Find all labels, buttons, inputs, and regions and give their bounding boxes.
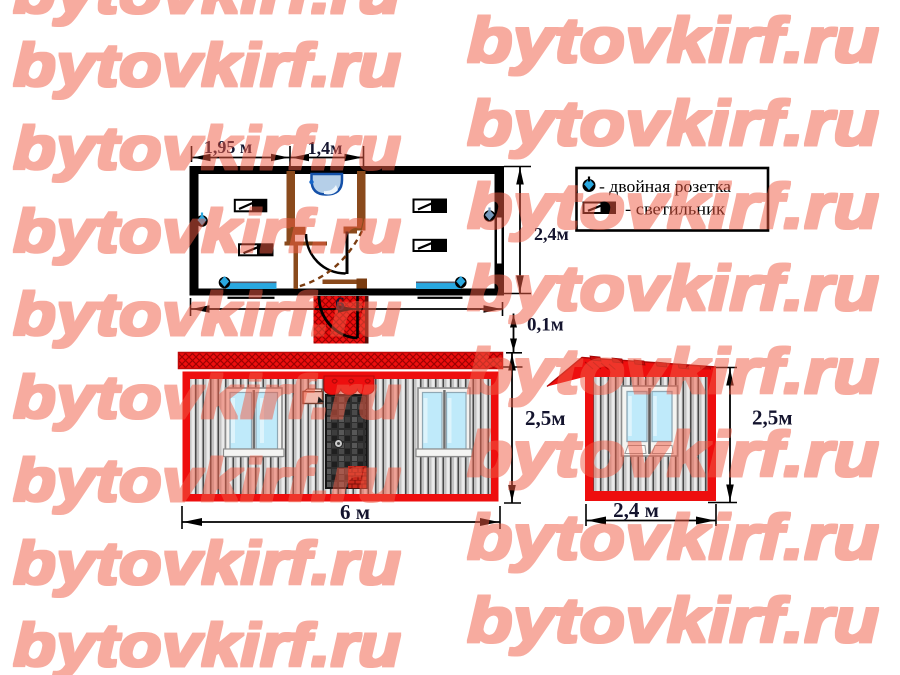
svg-text:bytovkirf.ru: bytovkirf.ru (13, 198, 401, 265)
svg-text:bytovkirf.ru: bytovkirf.ru (467, 420, 879, 490)
svg-text:bytovkirf.ru: bytovkirf.ru (467, 337, 879, 407)
svg-text:bytovkirf.ru: bytovkirf.ru (467, 254, 879, 324)
svg-text:bytovkirf.ru: bytovkirf.ru (467, 586, 879, 656)
svg-text:bytovkirf.ru: bytovkirf.ru (13, 0, 401, 26)
svg-text:bytovkirf.ru: bytovkirf.ru (13, 32, 401, 99)
svg-text:bytovkirf.ru: bytovkirf.ru (13, 612, 401, 675)
svg-text:bytovkirf.ru: bytovkirf.ru (467, 6, 879, 76)
svg-text:bytovkirf.ru: bytovkirf.ru (13, 115, 401, 182)
svg-text:bytovkirf.ru: bytovkirf.ru (467, 89, 879, 159)
svg-text:bytovkirf.ru: bytovkirf.ru (13, 364, 401, 431)
svg-text:bytovkirf.ru: bytovkirf.ru (467, 503, 879, 573)
svg-text:bytovkirf.ru: bytovkirf.ru (13, 530, 401, 597)
svg-text:bytovkirf.ru: bytovkirf.ru (13, 281, 401, 348)
svg-text:bytovkirf.ru: bytovkirf.ru (467, 172, 879, 242)
svg-text:bytovkirf.ru: bytovkirf.ru (13, 447, 401, 514)
